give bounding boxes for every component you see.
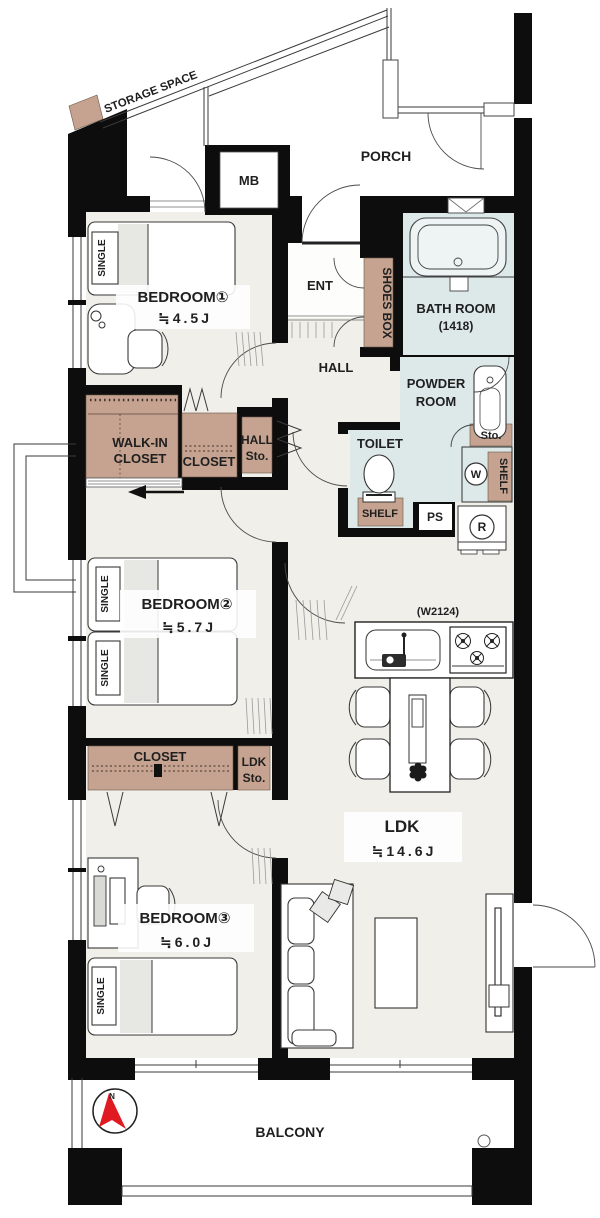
bay-window [14, 444, 76, 592]
hall-label: HALL [319, 360, 354, 375]
fridge-label: R [478, 520, 487, 534]
powder-label-2: ROOM [416, 394, 456, 409]
floor-plan-drawing: STORAGE SPACE [0, 0, 600, 1213]
powder-label-1: POWDER [407, 376, 466, 391]
washer-label: W [471, 469, 482, 481]
coffee-table [375, 918, 417, 1008]
closet-b1-label: CLOSET [183, 454, 236, 469]
compass: N [93, 1089, 137, 1133]
bed3-single-label: SINGLE [96, 977, 107, 1015]
bedroom2-title: BEDROOM② ≒5.7J [120, 590, 256, 638]
ldk-side-door-arc [533, 905, 595, 967]
wic-label-2: CLOSET [114, 451, 167, 466]
floor-plan-page: STORAGE SPACE [0, 0, 600, 1213]
bed2a-single-label: SINGLE [100, 575, 111, 613]
balcony-drain [478, 1135, 490, 1147]
bedroom2-windows [68, 560, 86, 706]
porch-label: PORCH [361, 148, 412, 164]
ldk-sto-label-2: Sto. [243, 771, 266, 785]
ps-label: PS [427, 510, 443, 524]
powder-sink [474, 366, 506, 438]
wic-label-1: WALK-IN [112, 435, 168, 450]
site-boundary [100, 8, 514, 212]
gate-gap [514, 104, 532, 118]
bath-size-label: (1418) [439, 319, 474, 333]
bed1-single-label: SINGLE [97, 239, 108, 277]
compass-north-label: N [109, 1092, 115, 1101]
storage-space: STORAGE SPACE [69, 69, 199, 130]
toilet-shelf-label: SHELF [362, 508, 398, 520]
sofa [281, 879, 354, 1048]
hall-sto-label-1: HALL [241, 433, 273, 447]
bed-single-2b: SINGLE [88, 632, 237, 705]
bedroom2-name: BEDROOM② [141, 596, 232, 613]
bed-single-1: SINGLE [88, 222, 235, 295]
powder-shelf-label: SHELF [497, 458, 509, 494]
bedroom1-size: ≒4.5J [158, 310, 212, 326]
kitchen-counter [355, 622, 513, 678]
powder-sto-label: Sto. [481, 430, 502, 442]
toilet-fixture [363, 455, 395, 502]
ldk-sto-label-1: LDK [242, 755, 267, 769]
ent-label: ENT [307, 278, 333, 293]
ldk-title: LDK ≒14.6J [344, 812, 462, 862]
bedroom3-title: BEDROOM③ ≒6.0J [118, 904, 254, 952]
hall-sto-label-2: Sto. [246, 449, 269, 463]
gate-door-arc [428, 113, 484, 169]
bedroom1-name: BEDROOM① [137, 289, 228, 306]
entrance-recess [302, 196, 360, 242]
bedroom2-size: ≒5.7J [162, 619, 216, 635]
bath-label: BATH ROOM [416, 301, 495, 316]
tv-board [486, 894, 513, 1032]
bedroom3-size: ≒6.0J [160, 934, 214, 950]
ldk-size: ≒14.6J [372, 843, 437, 859]
fridge-space: R [458, 506, 506, 554]
bed2b-single-label: SINGLE [100, 649, 111, 687]
bed-single-3: SINGLE [88, 958, 237, 1035]
closet-b3-label: CLOSET [134, 749, 187, 764]
bedroom3-name: BEDROOM③ [139, 910, 230, 927]
bedroom1-title: BEDROOM① ≒4.5J [116, 285, 250, 329]
bath-vent-window [448, 198, 484, 213]
shoes-box-label: SHOES BOX [380, 267, 394, 338]
toilet-label: TOILET [357, 436, 403, 451]
ldk-name: LDK [385, 817, 421, 836]
balcony-label: BALCONY [255, 1124, 325, 1140]
kitchen-width-label: (W2124) [417, 606, 460, 618]
ldk-door-gap [514, 903, 532, 967]
toilet-door-gap [336, 434, 350, 488]
mb-label: MB [239, 173, 259, 188]
